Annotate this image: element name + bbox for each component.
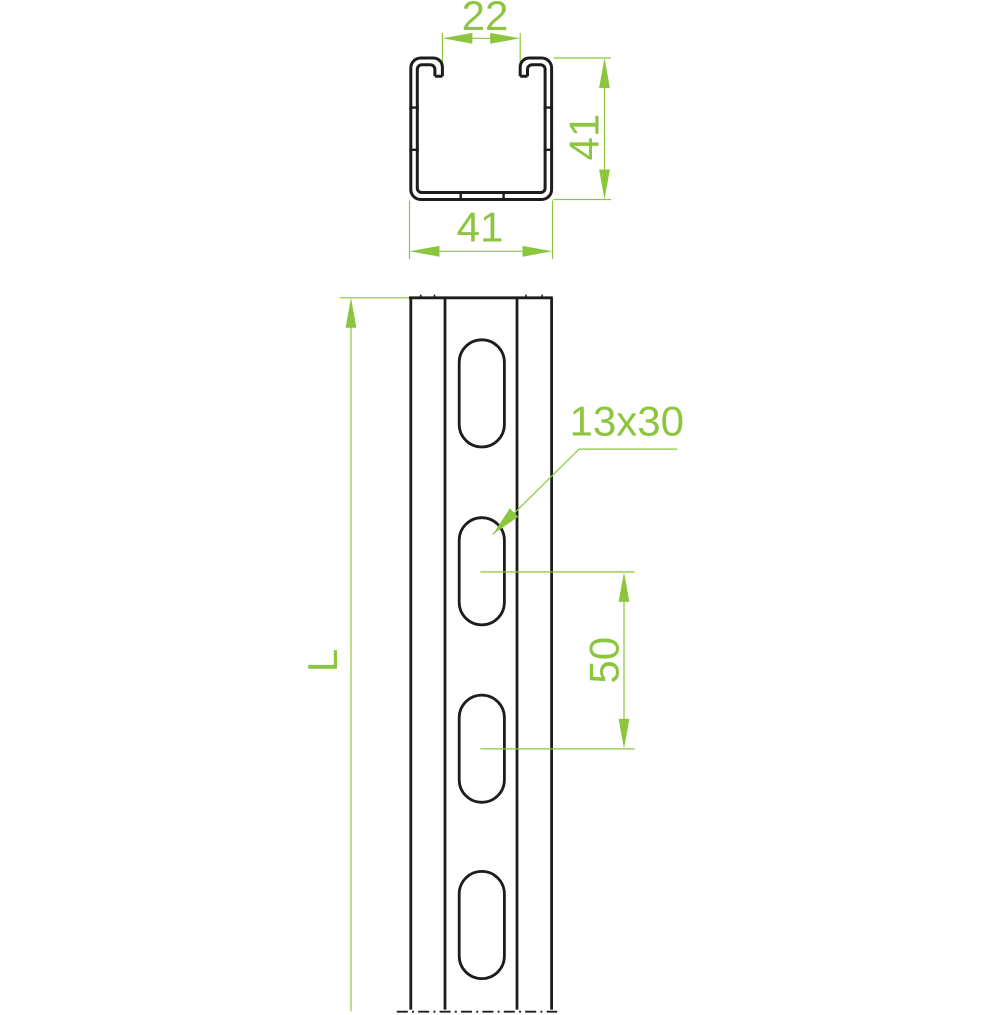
svg-text:13x30: 13x30	[570, 398, 684, 445]
svg-text:L: L	[299, 649, 346, 672]
svg-text:50: 50	[581, 637, 628, 684]
svg-text:41: 41	[561, 114, 608, 161]
svg-text:41: 41	[457, 204, 504, 251]
svg-text:22: 22	[462, 0, 509, 39]
